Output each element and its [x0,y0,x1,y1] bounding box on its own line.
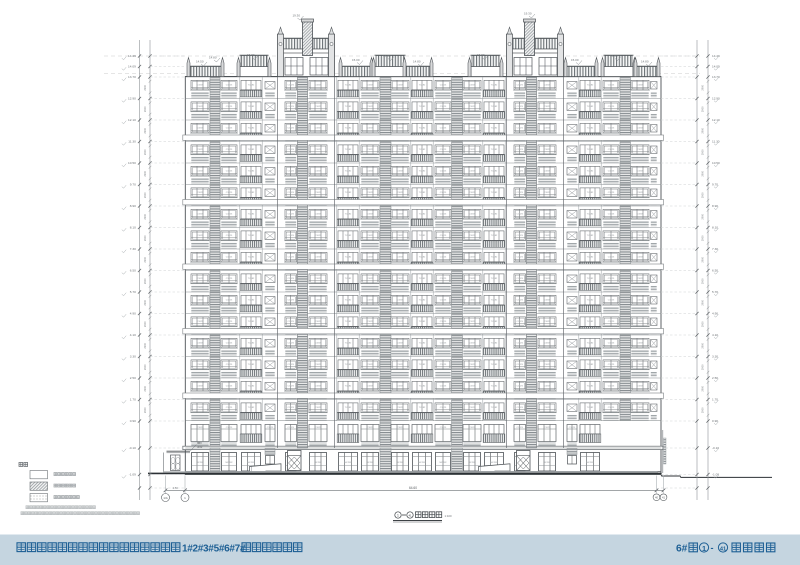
svg-text:3.30: 3.30 [130,354,136,358]
svg-text:14.09: 14.09 [712,64,720,68]
svg-text:2900: 2900 [143,342,147,348]
svg-text:C1825: C1825 [367,427,374,429]
svg-text:MC282: MC282 [586,462,594,464]
svg-text:C1825: C1825 [517,427,524,429]
svg-text:8.10: 8.10 [130,225,136,229]
svg-text:2900: 2900 [143,149,147,155]
svg-text:15.30: 15.30 [247,53,255,57]
svg-text:MC282: MC282 [396,462,404,464]
svg-text:2900: 2900 [701,213,705,219]
svg-text:2900: 2900 [701,106,705,112]
svg-text:2900: 2900 [701,342,705,348]
svg-text:2900: 2900 [143,278,147,284]
svg-text:2900: 2900 [701,149,705,155]
svg-text:2900: 2900 [701,385,705,391]
svg-text:14.49: 14.49 [128,54,136,58]
svg-text:-: - [711,543,714,553]
svg-text:1: 1 [702,544,706,553]
svg-text:11.30: 11.30 [128,139,136,143]
svg-text:2900: 2900 [143,84,147,90]
svg-text:4.10: 4.10 [712,333,718,337]
svg-text:15.30: 15.30 [610,54,618,58]
svg-text:-0.02: -0.02 [197,447,203,449]
svg-text:14.50: 14.50 [196,60,204,64]
svg-text:MC282: MC282 [247,462,255,464]
svg-text:12.10: 12.10 [128,118,136,122]
svg-text:14.09: 14.09 [128,64,136,68]
svg-text:2900: 2900 [143,235,147,241]
svg-text:C1825: C1825 [440,427,447,429]
svg-text:12.90: 12.90 [712,96,720,100]
svg-text:19.30: 19.30 [524,12,532,16]
svg-text:15.00: 15.00 [352,58,360,62]
svg-text:MC282: MC282 [344,462,352,464]
svg-text:10.50: 10.50 [128,161,136,165]
svg-text:9.70: 9.70 [130,182,136,186]
svg-text:2900: 2900 [701,84,705,90]
svg-text:1.70: 1.70 [712,397,718,401]
svg-text:2900: 2900 [143,170,147,176]
svg-text:2900: 2900 [701,235,705,241]
svg-text:4.90: 4.90 [130,311,136,315]
svg-text:2900: 2900 [143,321,147,327]
svg-text:2.50: 2.50 [173,486,179,490]
svg-text:12.90: 12.90 [128,96,136,100]
svg-text:C1825: C1825 [569,427,576,429]
svg-text:8.10: 8.10 [712,225,718,229]
svg-text:2.50: 2.50 [130,376,136,380]
svg-text:2900: 2900 [143,385,147,391]
svg-text:40: 40 [655,496,658,500]
svg-text:2900: 2900 [701,364,705,370]
svg-text:C1825: C1825 [197,427,204,429]
svg-text:MC282: MC282 [468,462,476,464]
svg-text:2900: 2900 [143,192,147,198]
svg-text:MC282: MC282 [366,462,374,464]
svg-text:2900: 2900 [143,213,147,219]
svg-text:MC282: MC282 [543,462,551,464]
svg-text:2900: 2900 [143,407,147,413]
svg-text:1.70: 1.70 [130,397,136,401]
svg-text:15.30: 15.30 [383,54,391,58]
svg-text:C1825: C1825 [315,427,322,429]
svg-text:8.90: 8.90 [130,204,136,208]
svg-text:15.30: 15.30 [477,53,485,57]
svg-text:C1825: C1825 [226,427,233,429]
svg-text:2900: 2900 [143,299,147,305]
svg-text:C1825: C1825 [544,427,551,429]
svg-text:-0.10: -0.10 [129,446,136,450]
svg-text:4.10: 4.10 [130,333,136,337]
svg-text:13.70: 13.70 [712,75,720,79]
svg-text:-1.09: -1.09 [129,472,136,476]
svg-text:1: 1 [397,513,399,517]
svg-text:XBX: XBX [197,443,202,445]
svg-text:MC282: MC282 [314,462,322,464]
svg-text:MC282: MC282 [490,462,498,464]
svg-text:2900: 2900 [143,256,147,262]
svg-text:4.90: 4.90 [712,311,718,315]
svg-text:5.70: 5.70 [712,290,718,294]
svg-text:2900: 2900 [143,106,147,112]
svg-text:7.30: 7.30 [130,247,136,251]
svg-text:C1825: C1825 [397,427,404,429]
svg-text:5.70: 5.70 [130,290,136,294]
svg-text:14.80: 14.80 [413,60,421,64]
svg-text:2900: 2900 [701,321,705,327]
svg-text:0.90: 0.90 [130,419,136,423]
svg-text:41: 41 [408,513,412,517]
svg-text:0.90: 0.90 [712,419,718,423]
svg-text:3.30: 3.30 [712,354,718,358]
svg-text:19.30: 19.30 [293,14,301,18]
svg-text:2900: 2900 [701,192,705,198]
svg-text:12.10: 12.10 [712,118,720,122]
svg-text:2900: 2900 [701,278,705,284]
svg-text:13.70: 13.70 [128,75,136,79]
svg-text:2900: 2900 [701,256,705,262]
svg-text:2900: 2900 [701,299,705,305]
svg-text:14.80: 14.80 [641,60,649,64]
svg-text:C1825: C1825 [288,427,295,429]
svg-text:MC282: MC282 [439,462,447,464]
svg-text:2900: 2900 [701,407,705,413]
svg-text:C1825: C1825 [469,427,476,429]
svg-text:8.90: 8.90 [712,204,718,208]
svg-text:9.70: 9.70 [712,182,718,186]
svg-text:MC282: MC282 [196,462,204,464]
svg-text:6.50: 6.50 [712,268,718,272]
svg-text:C1825: C1825 [267,427,274,429]
svg-text:2900: 2900 [701,127,705,133]
svg-text:41: 41 [662,496,665,500]
svg-text:1:100: 1:100 [445,514,452,518]
svg-text:41: 41 [720,546,726,552]
svg-text:14.80: 14.80 [209,56,217,60]
svg-text:2.50: 2.50 [712,376,718,380]
svg-text:2900: 2900 [143,127,147,133]
svg-text:64.60: 64.60 [409,486,417,490]
svg-text:2900: 2900 [701,170,705,176]
svg-text:6.50: 6.50 [130,268,136,272]
svg-text:10.50: 10.50 [712,161,720,165]
svg-text:MC282: MC282 [418,462,426,464]
svg-text:7.30: 7.30 [712,247,718,251]
svg-text:1#2#3#5#6#7#: 1#2#3#5#6#7# [182,543,246,554]
svg-text:6#: 6# [676,544,688,555]
svg-text:11.30: 11.30 [712,139,720,143]
svg-text:1/A: 1/A [163,496,168,500]
svg-text:15.00: 15.00 [571,58,579,62]
svg-text:14.49: 14.49 [712,54,720,58]
svg-text:MC282: MC282 [225,462,233,464]
svg-text:2900: 2900 [143,364,147,370]
